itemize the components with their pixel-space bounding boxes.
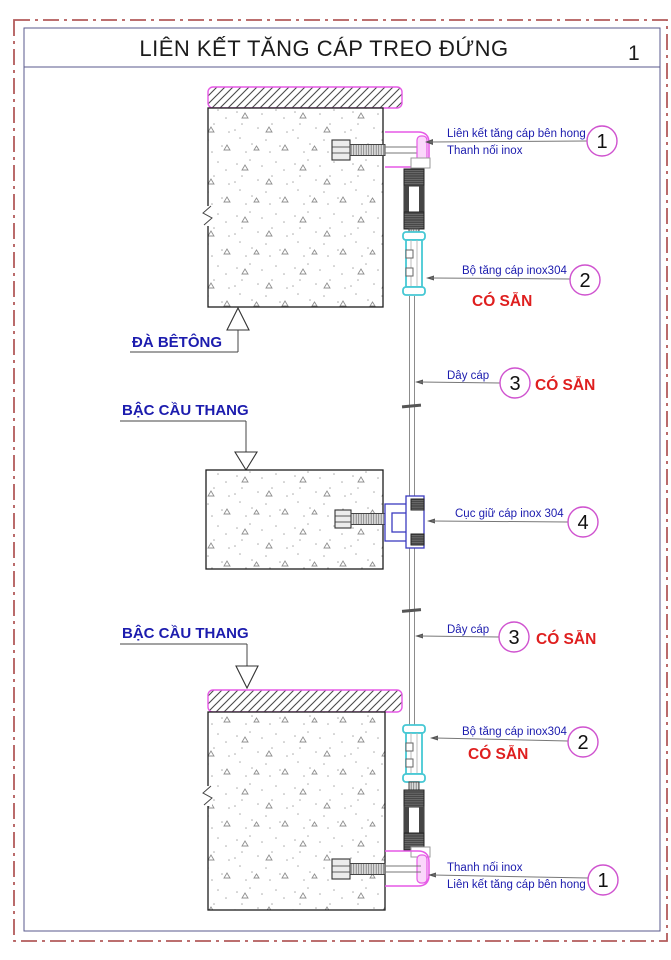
- leader-line: [420, 382, 500, 383]
- bottom-block: [200, 690, 402, 910]
- top-concrete-block: [208, 108, 383, 307]
- callout-number: 1: [596, 131, 607, 153]
- bottom-rod-body-edge: [419, 807, 424, 833]
- bottom-concrete-block: [208, 712, 385, 910]
- callout-side-link-top: Liên kết tăng cáp bên hong Thanh nối ino…: [425, 126, 617, 157]
- holder-bolt-shank: [351, 514, 385, 525]
- drawing-sheet: LIÊN KẾT TĂNG CÁP TREO ĐỨNG 1 ĐÀ BÊTÔNG: [0, 0, 671, 960]
- top-rod-lower-thread: [404, 212, 424, 229]
- availability-note: CÓ SẴN: [536, 630, 596, 648]
- callout-number: 4: [577, 512, 588, 534]
- top-beam: ĐÀ BÊTÔNG: [130, 87, 402, 352]
- callout-number: 3: [509, 373, 520, 395]
- clamp-screw-top: [411, 499, 424, 510]
- sheet-number: 1: [628, 42, 640, 65]
- top-rod-body-edge: [419, 186, 424, 212]
- turnbuckle-window: [406, 250, 413, 258]
- turnbuckle-window: [406, 759, 413, 767]
- callout-label: Dây cáp: [447, 624, 489, 636]
- callout-label: Cục giữ cáp inox 304: [455, 508, 564, 520]
- cable-joint-mark-upper: [402, 404, 421, 409]
- technical-drawing: LIÊN KẾT TĂNG CÁP TREO ĐỨNG 1 ĐÀ BÊTÔNG: [0, 0, 671, 960]
- bottom-rod-body-edge: [404, 807, 409, 833]
- callout-cable-lower: Dây cáp 3 CÓ SẴN: [415, 622, 596, 652]
- callout-label: Bộ tăng cáp inox304: [462, 726, 567, 738]
- stair-label-upper: BẬC CẦU THANG: [122, 401, 249, 419]
- leader-line: [431, 278, 570, 279]
- bottom-rod-stub: [409, 782, 419, 790]
- bottom-hatch-band: [208, 690, 402, 712]
- availability-note: CÓ SẴN: [535, 376, 595, 394]
- beam-label: ĐÀ BÊTÔNG: [132, 333, 222, 351]
- middle-step: BẬC CẦU THANG: [120, 401, 424, 569]
- callout-number: 1: [597, 870, 608, 892]
- callout-label: Liên kết tăng cáp bên hong: [447, 128, 586, 140]
- callout-label: Dây cáp: [447, 370, 489, 382]
- turnbuckle-window: [406, 268, 413, 276]
- top-turnbuckle-cap-lower: [403, 287, 425, 295]
- availability-note: CÓ SẴN: [468, 745, 528, 763]
- bottom-rod-upper-thread: [404, 790, 424, 807]
- callout-side-link-bottom: Thanh nối inox Liên kết tăng cáp bên hon…: [428, 862, 618, 895]
- clamp-screw-bottom: [411, 534, 424, 545]
- holder-bolt-head: [335, 510, 351, 528]
- top-turnbuckle-body: [406, 240, 422, 287]
- leader-line: [433, 875, 588, 878]
- callout-label: Thanh nối inox: [447, 145, 523, 157]
- bottom-bracket-pad: [417, 855, 427, 883]
- callout-turnbuckle-bottom: Bộ tăng cáp inox304 2 CÓ SẴN: [430, 726, 598, 763]
- leader-line: [430, 141, 587, 142]
- callout-label: Thanh nối inox: [447, 862, 523, 874]
- callout-number: 2: [577, 732, 588, 754]
- bottom-turnbuckle-cap-upper: [403, 725, 425, 733]
- top-rod-upper-thread: [404, 169, 424, 186]
- bottom-anchor-bolt-head: [332, 859, 350, 879]
- cable-joint-mark-lower: [402, 608, 421, 613]
- callout-number: 3: [508, 627, 519, 649]
- callout-number: 2: [579, 270, 590, 292]
- top-connector-plate: [411, 158, 430, 168]
- callout-cable-holder: Cục giữ cáp inox 304 4: [427, 507, 598, 537]
- top-hatch-band: [208, 87, 402, 108]
- callout-label: Bộ tăng cáp inox304: [462, 265, 567, 277]
- leader-line: [435, 738, 568, 741]
- up-arrow-beam: [227, 308, 249, 330]
- bottom-turnbuckle-cap-lower: [403, 774, 425, 782]
- leader-line: [432, 521, 568, 522]
- sheet-title: LIÊN KẾT TĂNG CÁP TREO ĐỨNG: [139, 36, 508, 61]
- availability-note: CÓ SẴN: [472, 292, 532, 310]
- top-anchor-bolt-shank: [350, 145, 385, 156]
- bottom-turnbuckle-body: [406, 733, 422, 774]
- down-arrow-stair-lower: [236, 666, 258, 688]
- lower-step-label: BẬC CẦU THANG: [120, 624, 258, 688]
- callout-label: Liên kết tăng cáp bên hong: [447, 879, 586, 891]
- leader-line: [420, 636, 499, 637]
- down-arrow-stair-upper: [235, 452, 257, 470]
- top-turnbuckle-cap-upper: [403, 232, 425, 240]
- stair-label-lower: BẬC CẦU THANG: [122, 624, 249, 642]
- bottom-anchor-bolt-shank: [350, 864, 385, 875]
- callouts: Liên kết tăng cáp bên hong Thanh nối ino…: [415, 126, 618, 895]
- top-anchor-bolt-head: [332, 140, 350, 160]
- top-rod-body-edge: [404, 186, 409, 212]
- callout-cable-upper: Dây cáp 3 CÓ SẴN: [415, 368, 595, 398]
- turnbuckle-window: [406, 743, 413, 751]
- callout-turnbuckle-top: Bộ tăng cáp inox304 2 CÓ SẴN: [426, 265, 600, 310]
